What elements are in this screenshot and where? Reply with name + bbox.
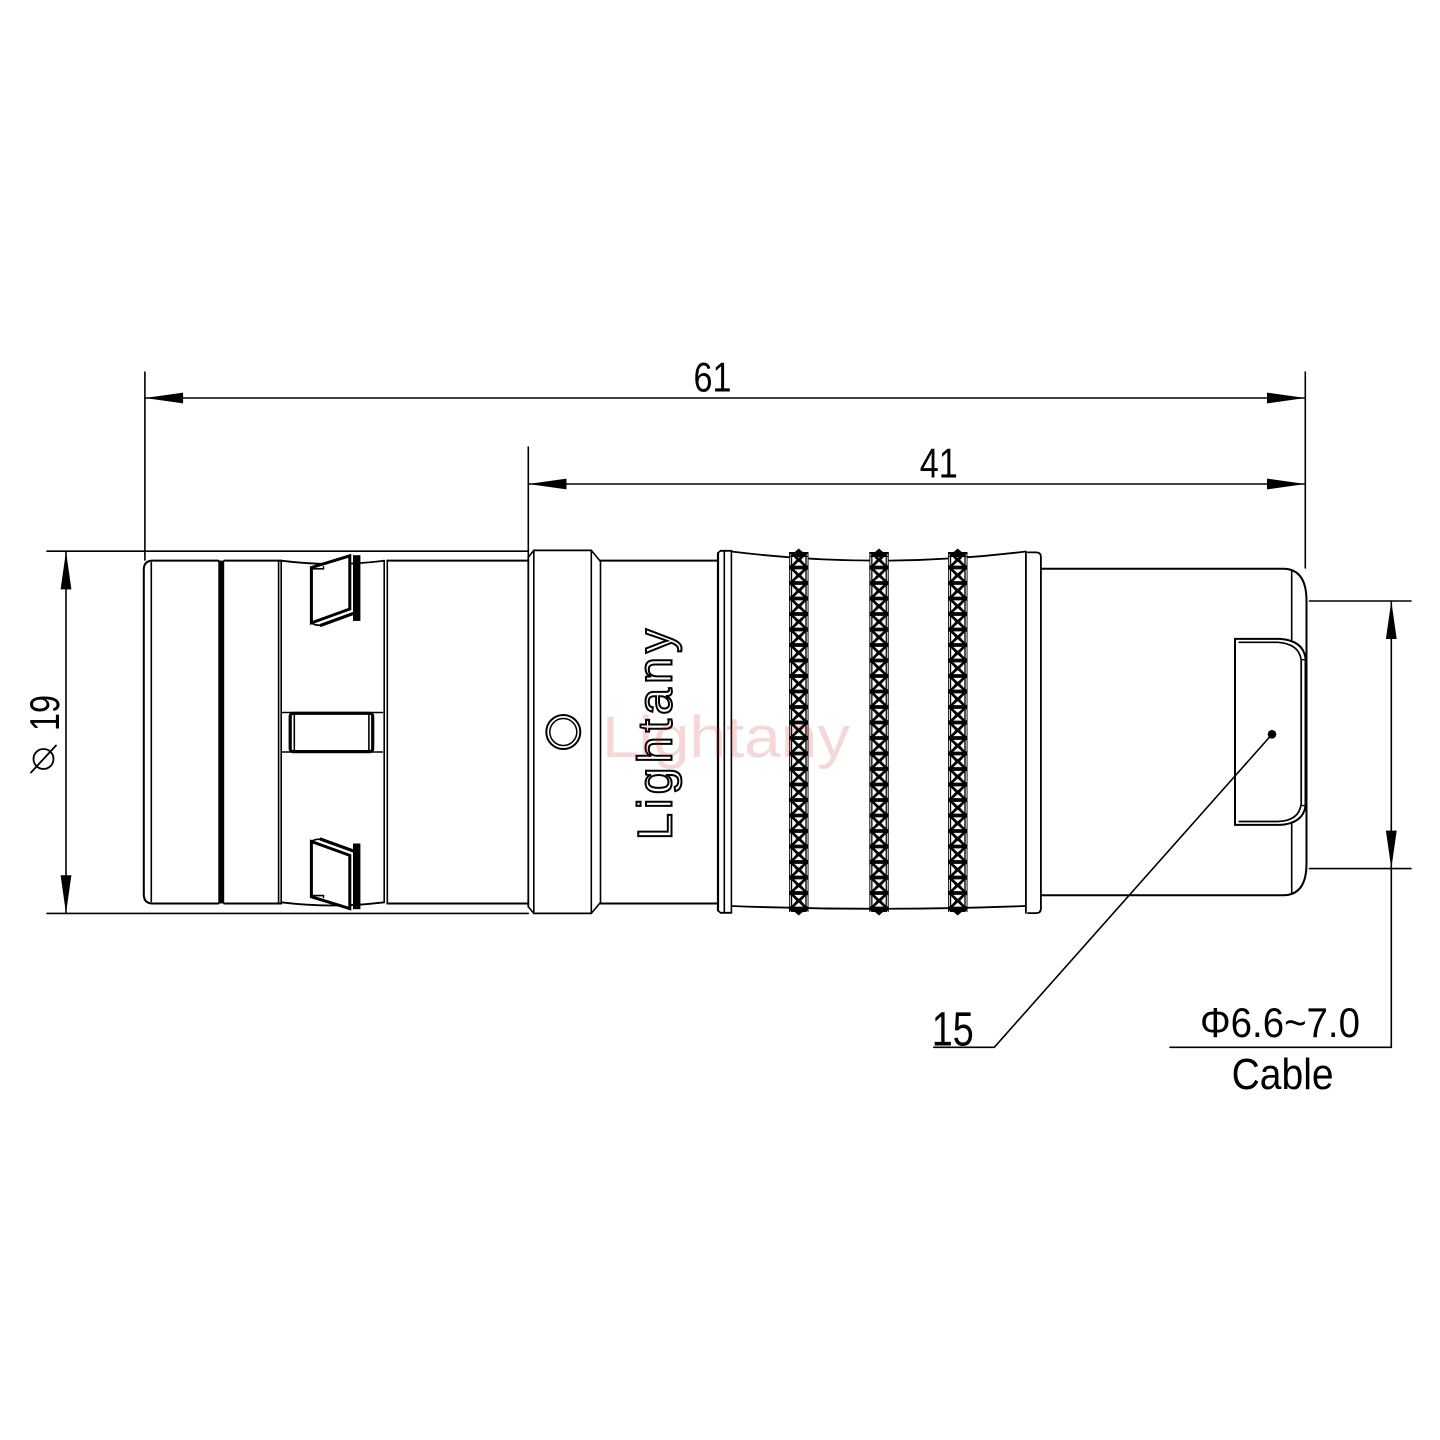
svg-text:Cable: Cable bbox=[1232, 1050, 1334, 1099]
svg-text:Lightany: Lightany bbox=[602, 705, 850, 770]
svg-text:Φ6.6~7.0: Φ6.6~7.0 bbox=[1200, 999, 1360, 1046]
svg-text:19: 19 bbox=[21, 695, 68, 731]
svg-text:15: 15 bbox=[932, 1004, 974, 1057]
svg-text:41: 41 bbox=[920, 440, 958, 487]
svg-text:61: 61 bbox=[694, 354, 732, 401]
